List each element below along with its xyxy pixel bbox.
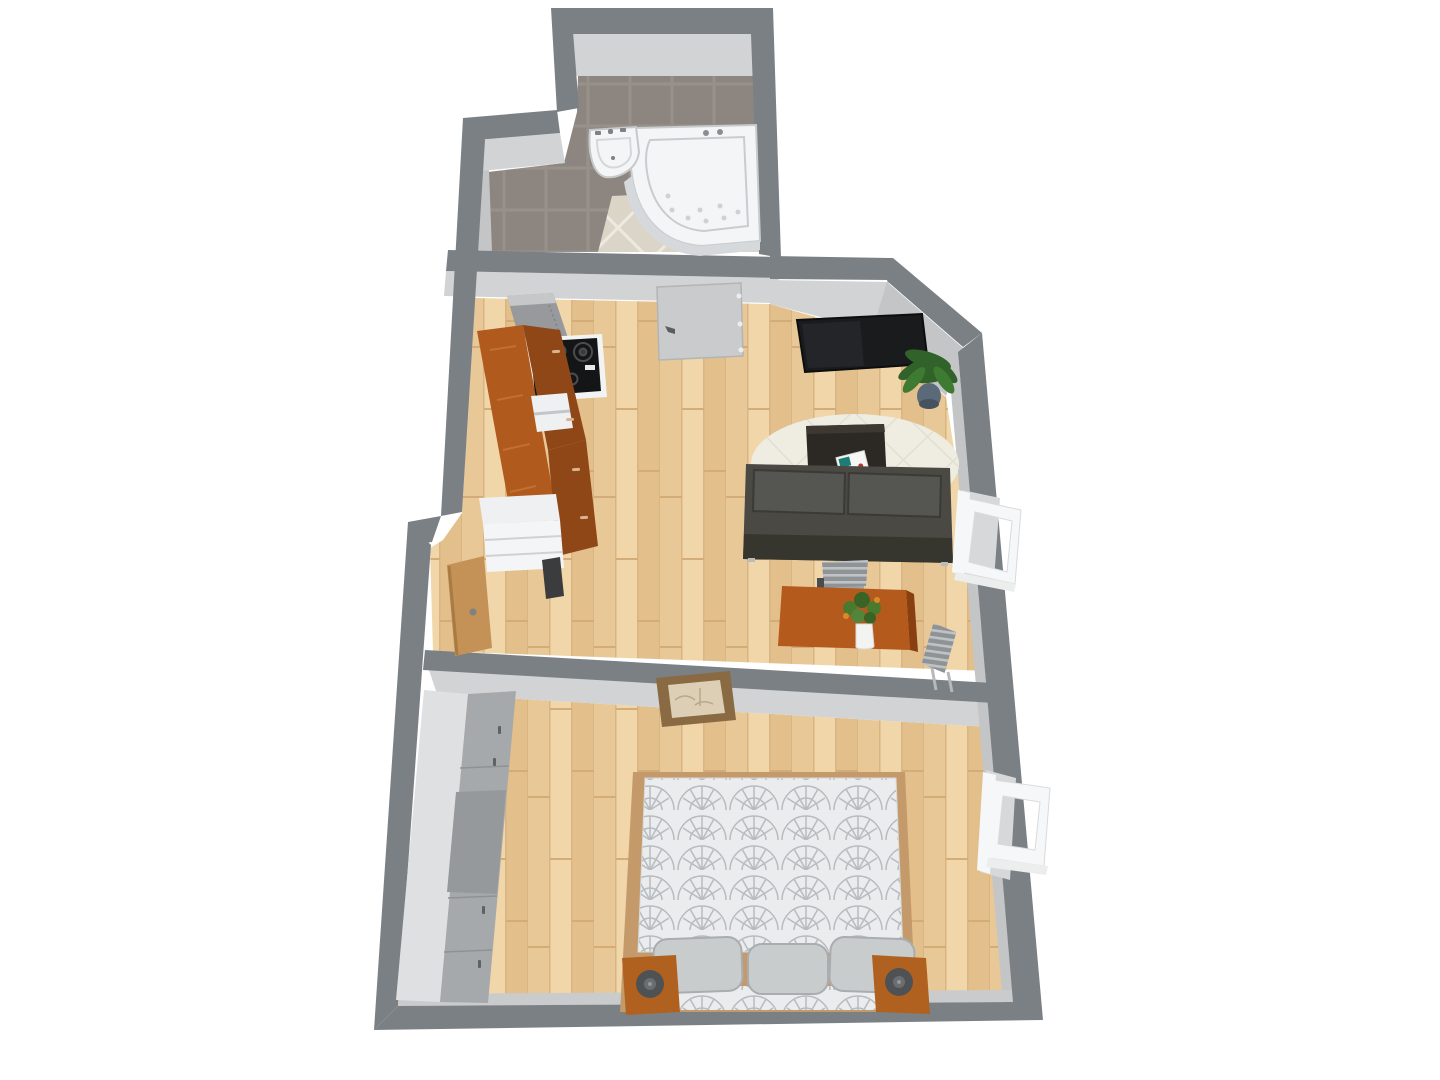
- floorplan-canvas: [0, 0, 1440, 1080]
- wardrobe-mirror-panel: [447, 790, 506, 894]
- cooktop-controls: [585, 365, 595, 370]
- flower-vase: [856, 624, 874, 649]
- tv-sheen: [802, 321, 864, 368]
- plant-pot-shadow: [919, 399, 939, 409]
- sofa-cushion-right: [848, 473, 941, 517]
- sofa-front: [743, 534, 953, 563]
- interior-door: [657, 283, 743, 360]
- living-window-open: [952, 490, 1021, 592]
- pillow: [748, 944, 828, 994]
- bathroom-north-wall-face: [558, 34, 767, 76]
- wall-bathroom-top: [551, 8, 773, 34]
- sofa-cushion-left: [753, 470, 845, 514]
- counter-appliance-top: [479, 494, 560, 524]
- nightstand-right: [872, 955, 930, 1014]
- lamp-finial: [648, 982, 652, 986]
- lamp-finial: [897, 980, 901, 984]
- entry-door-knob: [470, 609, 477, 616]
- wall-living-top: [770, 256, 893, 280]
- bed-duvet: [638, 778, 903, 952]
- nightstand-left: [622, 955, 680, 1015]
- floorplan-svg: [0, 0, 1440, 1080]
